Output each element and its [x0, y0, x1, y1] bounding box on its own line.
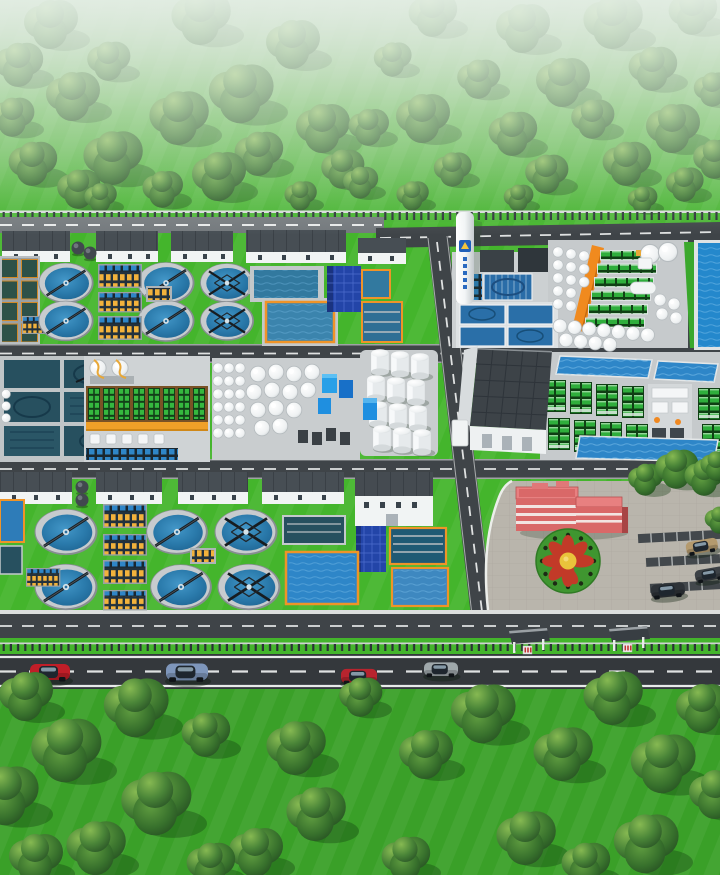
equipment-rack	[103, 534, 147, 556]
blue-cube-tank	[318, 398, 331, 414]
window	[203, 254, 207, 259]
roof-box	[556, 481, 569, 487]
admin-side-wall	[622, 507, 628, 533]
window	[380, 502, 385, 508]
roof-seams	[262, 472, 344, 492]
window	[412, 502, 417, 508]
green-rack	[103, 388, 115, 420]
dark-roof	[518, 248, 548, 272]
pump	[138, 434, 148, 444]
basin-ripple	[289, 555, 355, 601]
green-rack	[163, 388, 175, 420]
navy-panel-shade	[327, 266, 333, 312]
window	[34, 495, 38, 500]
warehouse-door	[522, 437, 532, 451]
silo-base	[90, 376, 134, 384]
window	[56, 495, 60, 500]
tower-window	[463, 278, 467, 282]
white-tank	[2, 414, 11, 423]
sphere-tank	[72, 242, 85, 257]
car-blue	[165, 664, 211, 688]
membrane-rack	[570, 382, 592, 414]
pump	[122, 434, 132, 444]
building-roof	[358, 238, 406, 253]
window	[108, 495, 112, 500]
window	[146, 254, 150, 259]
equipment-rack	[103, 590, 147, 610]
atmospheric-haze	[0, 0, 720, 235]
connector-cells	[148, 288, 170, 300]
green-rack	[133, 388, 145, 420]
window	[282, 255, 286, 260]
window	[212, 495, 216, 500]
window	[306, 255, 310, 260]
orange-rim-basin	[0, 500, 24, 542]
window-band	[516, 521, 578, 524]
window	[368, 256, 372, 261]
green-rack	[148, 388, 160, 420]
sidewalk-strip	[0, 610, 720, 614]
yellow-pipe-unit	[636, 250, 641, 256]
window	[150, 495, 154, 500]
blue-cube-top	[363, 398, 377, 403]
admin-roof	[576, 497, 622, 507]
horizontal-tank	[630, 282, 656, 294]
green-rack	[178, 388, 190, 420]
sphere-tank	[76, 494, 89, 509]
dark-pump	[326, 428, 336, 441]
green-rack	[88, 388, 100, 420]
building-wall	[358, 253, 406, 264]
orange-rim-basin	[362, 270, 390, 298]
clarifier-tank	[218, 564, 281, 610]
warehouse-door	[502, 436, 512, 450]
clarifier-tank	[35, 509, 98, 555]
window	[322, 495, 326, 500]
green-rack	[193, 388, 205, 420]
window-band	[576, 520, 622, 523]
orange-rim-basin	[390, 528, 446, 564]
bottom-tree-field	[0, 671, 720, 875]
clarifier-tank	[150, 564, 212, 609]
blue-panel-row	[86, 448, 178, 460]
tower-window	[463, 264, 467, 268]
white-tank	[668, 298, 680, 310]
roof-box	[532, 483, 548, 489]
window	[130, 495, 134, 500]
window	[108, 254, 112, 259]
white-tank	[656, 308, 668, 320]
equipment-rack	[103, 560, 147, 584]
clarifier-tank	[38, 301, 93, 341]
blue-cube-tank	[339, 380, 353, 398]
membrane-rack	[698, 388, 720, 420]
equipment-rack	[98, 292, 142, 312]
equipment-rack	[98, 316, 142, 340]
basin-ripple	[268, 304, 332, 340]
clarifier-tank	[200, 263, 254, 303]
window	[390, 256, 394, 261]
pump	[154, 434, 164, 444]
white-tank	[654, 294, 666, 306]
window-band	[516, 505, 578, 508]
equipment-rack	[103, 504, 147, 528]
silo	[658, 242, 677, 261]
flower-center	[560, 553, 577, 570]
blue-cube-top	[322, 374, 337, 378]
aerial-render	[0, 0, 720, 875]
car-silver	[423, 662, 460, 681]
filter-bed-row	[588, 304, 648, 315]
roof-seams	[0, 472, 72, 492]
roof-seams	[355, 472, 433, 496]
middle-equipment-band	[0, 346, 720, 462]
clarifier-tank	[138, 300, 195, 342]
equipment-rack	[98, 264, 142, 288]
warehouse-roof	[470, 348, 552, 430]
admin-roof-inner	[519, 489, 575, 497]
sphere-tank	[76, 481, 89, 496]
window	[183, 254, 187, 259]
dark-pump	[340, 432, 350, 445]
window-band	[516, 513, 578, 516]
aeration-basin	[460, 327, 505, 346]
window	[54, 254, 58, 259]
clarifier-tank	[146, 509, 208, 554]
window	[364, 502, 369, 508]
aeration-basin	[508, 305, 553, 324]
window	[190, 495, 194, 500]
membrane-corridor	[648, 384, 692, 440]
basin-ripple	[394, 570, 446, 604]
tower-window	[463, 271, 467, 275]
dark-pump	[312, 432, 322, 445]
basin-ripple	[698, 243, 720, 347]
warehouse-door	[482, 434, 492, 448]
pump	[106, 434, 116, 444]
window	[396, 502, 401, 508]
warehouse-annex	[452, 420, 468, 446]
window-band	[576, 513, 622, 516]
dark-basin	[4, 426, 60, 456]
window	[330, 255, 334, 260]
window	[298, 495, 302, 500]
roof-seams	[96, 472, 162, 492]
membrane-rack	[596, 384, 618, 416]
orange-walkway-edge	[86, 429, 208, 431]
window	[232, 495, 236, 500]
tall-tank-farm	[367, 349, 435, 457]
dark-basin	[4, 360, 60, 388]
clarifier-tank	[215, 509, 278, 555]
white-tank	[2, 390, 11, 399]
connector-cells	[192, 550, 214, 562]
pump	[90, 434, 100, 444]
window	[221, 254, 225, 259]
membrane-rack	[622, 386, 644, 418]
sphere-tank	[84, 247, 97, 262]
clarifier-tank	[38, 263, 93, 303]
silo-skid	[638, 258, 652, 269]
dark-pump	[298, 430, 308, 443]
roof-seams	[178, 472, 248, 492]
door	[386, 514, 398, 526]
membrane-rack	[548, 418, 570, 450]
white-tank	[2, 402, 11, 411]
flower-bed	[536, 529, 600, 593]
white-tank	[670, 312, 682, 324]
equipment-rack	[26, 568, 60, 587]
window	[274, 495, 278, 500]
tower-window	[463, 285, 467, 289]
flower-center-highlight	[564, 557, 569, 562]
window	[258, 255, 262, 260]
dark-basin	[0, 546, 22, 574]
dark-basin	[283, 516, 345, 544]
basin-ripple	[654, 361, 718, 382]
basin-ripple	[254, 270, 318, 298]
clarifier-tank	[200, 301, 254, 341]
dark-roof	[480, 250, 514, 272]
tower-window	[463, 257, 467, 261]
median-fence-posts	[0, 644, 720, 651]
window	[128, 254, 132, 259]
warehouse	[452, 346, 552, 454]
green-rack	[118, 388, 130, 420]
